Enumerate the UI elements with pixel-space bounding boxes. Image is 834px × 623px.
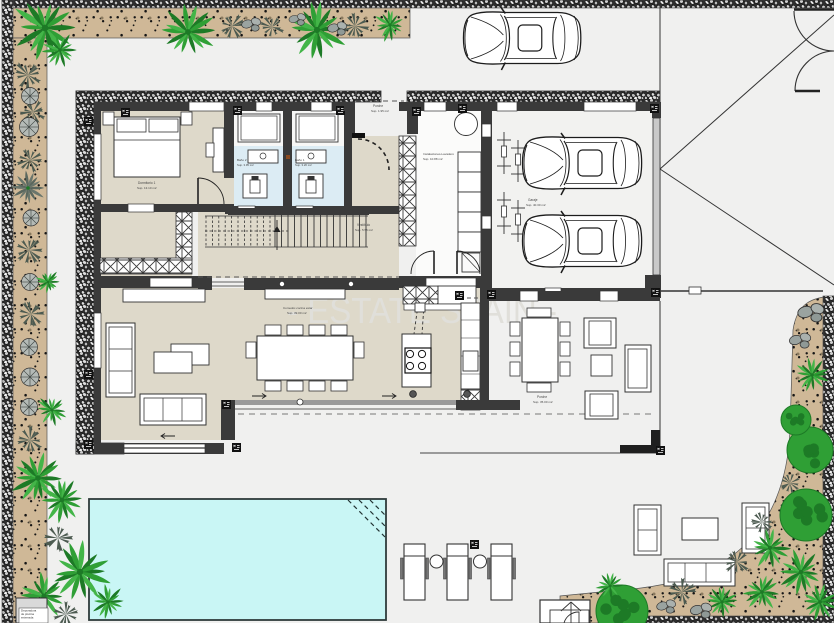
svg-text:Comedor-cocina estar: Comedor-cocina estar xyxy=(283,306,313,310)
svg-text:Baño 2: Baño 2 xyxy=(237,158,247,162)
svg-text:Sup. 10.88 m2: Sup. 10.88 m2 xyxy=(423,157,443,161)
svg-text:enterrada: enterrada xyxy=(21,616,34,620)
svg-text:Dormitorio 1: Dormitorio 1 xyxy=(138,181,156,185)
svg-text:Porche: Porche xyxy=(537,395,547,399)
svg-text:Vestíbulo: Vestíbulo xyxy=(357,223,370,227)
svg-text:Sup. 39.00 m2: Sup. 39.00 m2 xyxy=(287,311,307,315)
svg-text:Sup. 40.30 m2: Sup. 40.30 m2 xyxy=(526,203,546,207)
svg-text:Sup. 35.00 m2: Sup. 35.00 m2 xyxy=(533,400,553,404)
svg-text:Sup. 13.10 m2: Sup. 13.10 m2 xyxy=(137,186,157,190)
svg-text:Instalaciones-Lavadero: Instalaciones-Lavadero xyxy=(423,152,454,156)
svg-text:Baño 1: Baño 1 xyxy=(295,158,305,162)
svg-text:Porche: Porche xyxy=(373,104,383,108)
svg-text:Sup. 1.95 m2: Sup. 1.95 m2 xyxy=(371,109,389,113)
svg-text:Garaje: Garaje xyxy=(528,198,538,202)
svg-text:Sup. 3.20 m2: Sup. 3.20 m2 xyxy=(295,163,312,167)
svg-text:Sup. 3.95 m2: Sup. 3.95 m2 xyxy=(237,163,254,167)
svg-text:Sup. 5.55 m2: Sup. 5.55 m2 xyxy=(355,228,373,232)
